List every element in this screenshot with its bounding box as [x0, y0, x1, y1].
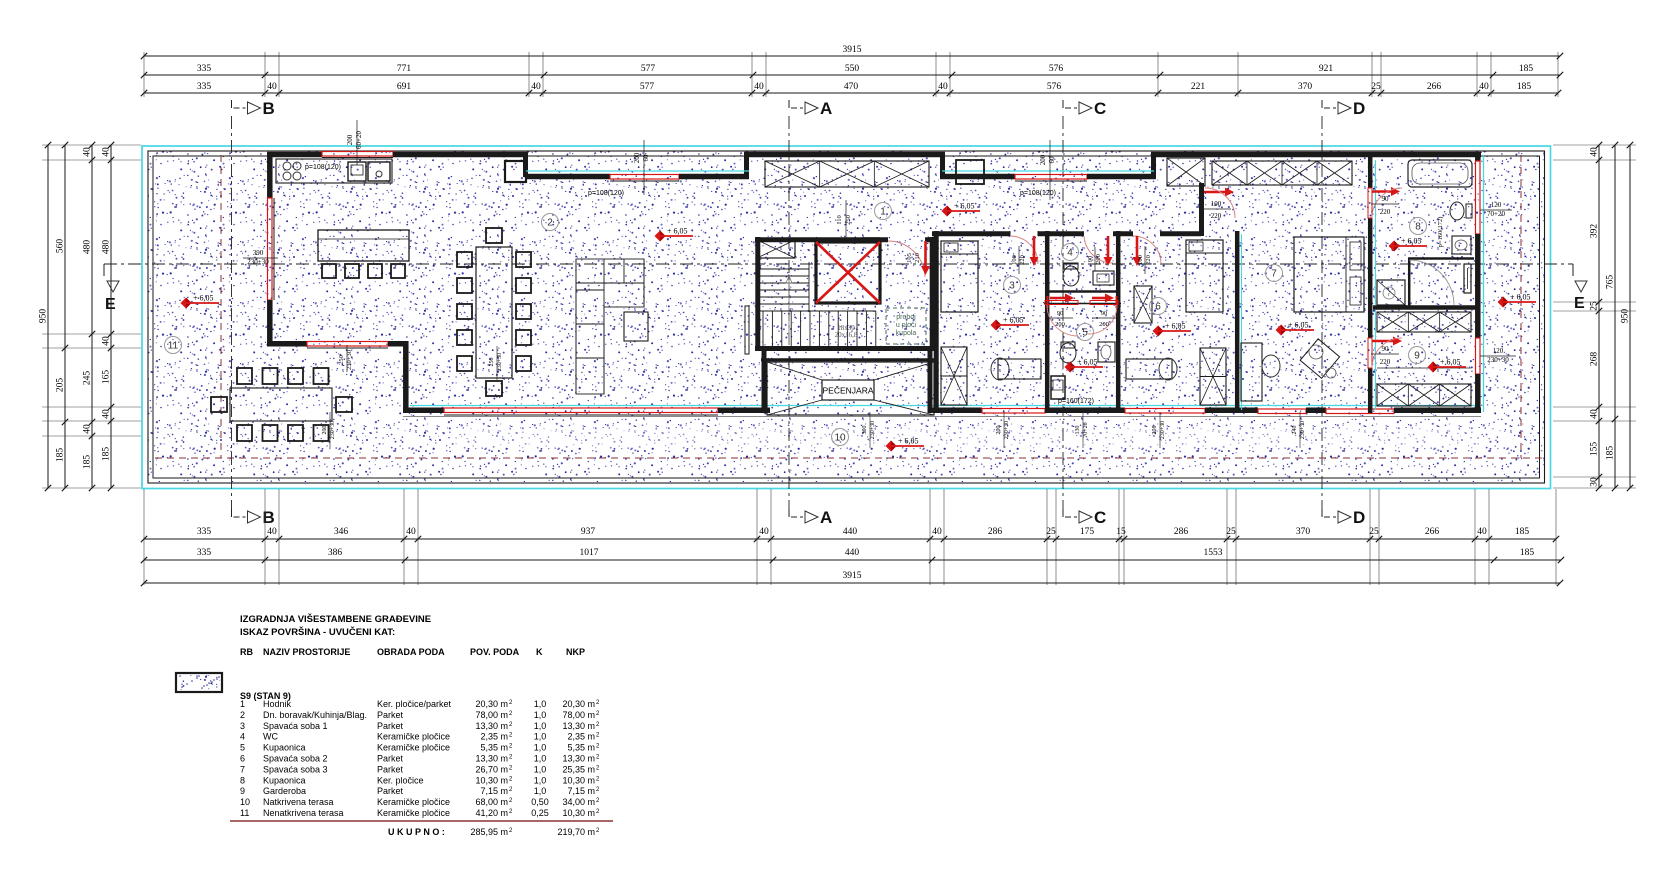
- svg-text:470: 470: [844, 82, 859, 92]
- svg-text:Keramičke pločice: Keramičke pločice: [377, 808, 450, 818]
- svg-text:+ 6,05: + 6,05: [1510, 293, 1531, 302]
- svg-text:205: 205: [56, 378, 66, 393]
- svg-text:691: 691: [397, 82, 412, 92]
- svg-text:Keramičke pločice: Keramičke pločice: [377, 732, 450, 742]
- svg-text:335: 335: [197, 527, 212, 537]
- svg-text:200: 200: [1039, 154, 1047, 165]
- svg-text:p=108(120): p=108(120): [1020, 190, 1056, 197]
- svg-text:576: 576: [1047, 82, 1062, 92]
- svg-text:219,70 m: 219,70 m: [557, 827, 595, 837]
- svg-text:100: 100: [1137, 255, 1144, 265]
- svg-text:200: 200: [1095, 254, 1102, 264]
- svg-text:13,30 m: 13,30 m: [475, 754, 508, 764]
- svg-text:230+30: 230+30: [346, 350, 353, 370]
- svg-text:200: 200: [633, 152, 641, 163]
- svg-text:100: 100: [1011, 255, 1018, 265]
- svg-text:60: 60: [1048, 156, 1056, 164]
- svg-text:70+20: 70+20: [1487, 210, 1505, 218]
- svg-text:120: 120: [1493, 347, 1504, 355]
- svg-text:NAZIV PROSTORIJE: NAZIV PROSTORIJE: [263, 647, 350, 657]
- svg-text:Ker. pločice/parket: Ker. pločice/parket: [377, 699, 452, 709]
- svg-text:Keramičke pločice: Keramičke pločice: [377, 743, 450, 753]
- svg-text:5,35 m: 5,35 m: [567, 743, 595, 753]
- svg-text:392: 392: [1590, 224, 1600, 239]
- svg-text:390: 390: [253, 249, 264, 257]
- svg-text:2: 2: [596, 700, 600, 706]
- svg-text:Spavaća soba 1: Spavaća soba 1: [263, 721, 328, 731]
- svg-text:440: 440: [843, 527, 858, 537]
- svg-text:40: 40: [1479, 82, 1489, 92]
- svg-text:40: 40: [531, 82, 541, 92]
- svg-text:4: 4: [1067, 248, 1073, 259]
- svg-text:370: 370: [1296, 527, 1311, 537]
- svg-text:105: 105: [906, 253, 913, 263]
- svg-text:13,30 m: 13,30 m: [562, 754, 595, 764]
- svg-text:+ 6,05: + 6,05: [1077, 358, 1098, 367]
- svg-text:40: 40: [1590, 147, 1600, 157]
- svg-text:2: 2: [509, 711, 513, 717]
- svg-text:440: 440: [845, 548, 860, 558]
- svg-text:200: 200: [996, 426, 1002, 435]
- svg-text:1,0: 1,0: [534, 786, 547, 796]
- svg-text:A: A: [820, 508, 832, 527]
- svg-text:Natkrivena terasa: Natkrivena terasa: [263, 797, 334, 807]
- svg-text:60: 60: [642, 154, 650, 162]
- svg-text:90: 90: [1101, 310, 1108, 317]
- svg-text:2: 2: [509, 744, 513, 750]
- svg-text:2: 2: [509, 776, 513, 782]
- svg-text:40: 40: [102, 409, 112, 419]
- svg-text:240: 240: [1292, 426, 1298, 435]
- svg-text:D: D: [1353, 99, 1365, 118]
- svg-text:Parket: Parket: [377, 786, 404, 796]
- svg-text:921: 921: [1319, 64, 1334, 74]
- svg-text:RB: RB: [240, 647, 253, 657]
- svg-text:15: 15: [1116, 527, 1126, 537]
- svg-text:8: 8: [240, 775, 245, 785]
- svg-text:185: 185: [1520, 548, 1535, 558]
- svg-text:250: 250: [489, 358, 495, 367]
- svg-text:7: 7: [1271, 269, 1277, 280]
- svg-text:25,35 m: 25,35 m: [562, 764, 595, 774]
- svg-text:Nenatkrivena terasa: Nenatkrivena terasa: [263, 808, 344, 818]
- svg-text:2: 2: [596, 776, 600, 782]
- svg-text:220: 220: [1380, 358, 1391, 366]
- svg-text:480: 480: [102, 240, 112, 255]
- svg-text:Ker. pločice: Ker. pločice: [377, 775, 424, 785]
- svg-text:266: 266: [1427, 82, 1442, 92]
- svg-text:Parket: Parket: [377, 764, 404, 774]
- svg-text:WC: WC: [263, 732, 278, 742]
- svg-text:185: 185: [1515, 527, 1530, 537]
- svg-text:2: 2: [596, 787, 600, 793]
- svg-text:250: 250: [338, 355, 345, 365]
- svg-text:771: 771: [397, 64, 412, 74]
- svg-text:560: 560: [56, 239, 66, 254]
- svg-text:3915: 3915: [843, 45, 862, 55]
- svg-text:+ 6,05: + 6,05: [954, 202, 975, 211]
- svg-text:120: 120: [1491, 201, 1502, 209]
- svg-text:E: E: [1574, 295, 1585, 312]
- svg-text:5: 5: [240, 743, 245, 753]
- svg-text:10,30 m: 10,30 m: [475, 775, 508, 785]
- svg-text:230+30: 230+30: [1004, 421, 1010, 439]
- svg-text:576: 576: [1049, 64, 1064, 74]
- svg-text:C: C: [1094, 99, 1106, 118]
- svg-text:Garderoba: Garderoba: [263, 786, 306, 796]
- svg-text:2: 2: [596, 798, 600, 804]
- svg-text:11: 11: [240, 808, 249, 818]
- svg-text:220: 220: [1380, 208, 1391, 216]
- svg-text:130: 130: [1075, 426, 1081, 435]
- svg-text:950: 950: [39, 309, 49, 324]
- svg-text:3: 3: [1009, 281, 1015, 292]
- svg-text:D: D: [1353, 508, 1365, 527]
- svg-text:70+20: 70+20: [1083, 422, 1089, 437]
- svg-text:175: 175: [1080, 527, 1095, 537]
- svg-text:10,30 m: 10,30 m: [562, 808, 595, 818]
- svg-text:NKP: NKP: [566, 647, 585, 657]
- svg-text:40: 40: [267, 82, 277, 92]
- svg-text:Hodnik: Hodnik: [263, 699, 292, 709]
- svg-text:2: 2: [509, 733, 513, 739]
- svg-text:230+30: 230+30: [1487, 356, 1509, 364]
- svg-text:185: 185: [1517, 82, 1532, 92]
- svg-text:2: 2: [509, 755, 513, 761]
- svg-text:25: 25: [1226, 527, 1236, 537]
- svg-text:25: 25: [1590, 301, 1600, 311]
- svg-text:1: 1: [880, 207, 886, 218]
- svg-text:OBRADA PODA: OBRADA PODA: [377, 647, 445, 657]
- svg-text:40: 40: [1590, 409, 1600, 419]
- svg-text:210: 210: [914, 253, 921, 263]
- svg-text:480: 480: [83, 240, 93, 255]
- svg-text:B: B: [263, 99, 275, 118]
- svg-text:1: 1: [240, 699, 245, 709]
- svg-text:3: 3: [240, 721, 245, 731]
- svg-text:1,0: 1,0: [534, 754, 547, 764]
- svg-text:230+30: 230+30: [870, 421, 876, 439]
- svg-text:40: 40: [932, 527, 942, 537]
- svg-text:0,25: 0,25: [531, 808, 549, 818]
- svg-text:u ploči: u ploči: [896, 322, 917, 329]
- svg-text:K: K: [536, 647, 543, 657]
- svg-text:10: 10: [834, 433, 846, 444]
- svg-text:386: 386: [328, 548, 343, 558]
- svg-text:40: 40: [754, 82, 764, 92]
- svg-text:POV. PODA: POV. PODA: [470, 647, 520, 657]
- svg-text:230+30: 230+30: [1300, 421, 1306, 439]
- svg-text:110: 110: [836, 215, 843, 225]
- svg-text:200: 200: [1099, 321, 1109, 328]
- svg-text:34,00 m: 34,00 m: [562, 797, 595, 807]
- svg-text:765: 765: [1606, 275, 1616, 290]
- svg-text:30: 30: [1590, 477, 1600, 487]
- svg-text:266: 266: [1425, 527, 1440, 537]
- svg-text:1,0: 1,0: [534, 764, 547, 774]
- svg-text:78,00 m: 78,00 m: [475, 710, 508, 720]
- svg-text:285,95 m: 285,95 m: [470, 827, 508, 837]
- svg-text:2: 2: [596, 744, 600, 750]
- svg-text:370: 370: [1298, 82, 1313, 92]
- svg-text:p=108(120): p=108(120): [588, 190, 624, 197]
- svg-text:335: 335: [197, 64, 212, 74]
- svg-text:+ 6,05: + 6,05: [898, 437, 919, 446]
- svg-text:250: 250: [845, 215, 852, 225]
- svg-text:Dn. boravak/Kuhinja/Blag.: Dn. boravak/Kuhinja/Blag.: [263, 710, 367, 720]
- svg-text:5,35 m: 5,35 m: [480, 743, 508, 753]
- svg-text:10,30 m: 10,30 m: [562, 775, 595, 785]
- svg-text:7: 7: [240, 764, 245, 774]
- svg-text:40: 40: [102, 147, 112, 157]
- svg-text:220: 220: [1211, 212, 1222, 220]
- svg-text:+ 6,05: + 6,05: [667, 227, 688, 236]
- svg-text:+ 6,05: + 6,05: [1165, 322, 1186, 331]
- svg-text:Spavaća soba 2: Spavaća soba 2: [263, 754, 328, 764]
- svg-text:2: 2: [509, 700, 513, 706]
- svg-text:9: 9: [240, 786, 245, 796]
- svg-text:+ 6,05: + 6,05: [193, 294, 214, 303]
- svg-text:1,0: 1,0: [534, 743, 547, 753]
- svg-text:185: 185: [1606, 446, 1616, 461]
- svg-text:40: 40: [102, 336, 112, 346]
- svg-text:13,30 m: 13,30 m: [475, 721, 508, 731]
- svg-text:6: 6: [1155, 302, 1161, 313]
- svg-text:937: 937: [581, 527, 596, 537]
- svg-text:13,30 m: 13,30 m: [562, 721, 595, 731]
- svg-text:2,35 m: 2,35 m: [567, 732, 595, 742]
- svg-text:185: 185: [102, 447, 112, 462]
- svg-text:245: 245: [83, 371, 93, 386]
- svg-text:68,00 m: 68,00 m: [475, 797, 508, 807]
- svg-text:2: 2: [509, 798, 513, 804]
- svg-text:B: B: [263, 508, 275, 527]
- svg-text:7,15 m: 7,15 m: [567, 786, 595, 796]
- svg-text:90: 90: [1057, 310, 1064, 317]
- svg-text:1,0: 1,0: [534, 699, 547, 709]
- svg-text:3915: 3915: [843, 571, 862, 581]
- svg-text:1017: 1017: [580, 548, 599, 558]
- svg-text:220: 220: [1019, 255, 1026, 265]
- svg-text:20,30 m: 20,30 m: [475, 699, 508, 709]
- svg-text:+ 6,05: + 6,05: [1440, 358, 1461, 367]
- svg-text:1,0: 1,0: [534, 775, 547, 785]
- svg-text:PEČENJARA: PEČENJARA: [822, 386, 873, 396]
- svg-text:2: 2: [596, 722, 600, 728]
- svg-text:40: 40: [759, 527, 769, 537]
- svg-text:90: 90: [1382, 345, 1390, 353]
- svg-text:100: 100: [1211, 200, 1222, 208]
- svg-text:40: 40: [938, 82, 948, 92]
- svg-text:40: 40: [1477, 527, 1487, 537]
- svg-text:40: 40: [267, 527, 277, 537]
- svg-text:kupola: kupola: [896, 330, 917, 337]
- svg-text:7,15 m: 7,15 m: [480, 786, 508, 796]
- svg-text:4: 4: [240, 732, 245, 742]
- svg-text:9: 9: [1414, 351, 1420, 362]
- svg-text:200: 200: [322, 426, 328, 435]
- svg-text:286: 286: [1174, 527, 1189, 537]
- svg-text:2: 2: [509, 765, 513, 771]
- svg-text:155: 155: [1590, 442, 1600, 457]
- svg-text:25: 25: [1371, 82, 1381, 92]
- svg-text:577: 577: [640, 82, 655, 92]
- svg-text:60+20: 60+20: [355, 131, 363, 149]
- svg-text:2: 2: [509, 828, 513, 834]
- svg-text:335: 335: [197, 82, 212, 92]
- svg-text:950: 950: [1621, 309, 1631, 324]
- svg-text:41,20 m: 41,20 m: [475, 808, 508, 818]
- svg-text:5: 5: [1082, 328, 1088, 339]
- svg-text:Kupaonica: Kupaonica: [263, 743, 306, 753]
- svg-text:185: 185: [83, 455, 93, 470]
- svg-text:2: 2: [596, 765, 600, 771]
- svg-text:10: 10: [240, 797, 250, 807]
- svg-text:26,70 m: 26,70 m: [475, 764, 508, 774]
- svg-text:Spavaća soba 3: Spavaća soba 3: [263, 764, 328, 774]
- svg-text:346: 346: [334, 527, 349, 537]
- svg-text:286: 286: [988, 527, 1003, 537]
- svg-text:A: A: [820, 99, 832, 118]
- svg-text:20,30 m: 20,30 m: [562, 699, 595, 709]
- svg-text:2: 2: [509, 787, 513, 793]
- svg-text:8: 8: [1415, 222, 1421, 233]
- svg-text:230+30: 230+30: [330, 421, 336, 439]
- svg-text:Parket: Parket: [377, 710, 404, 720]
- svg-text:U K U P N O :: U K U P N O :: [388, 827, 445, 837]
- svg-text:90: 90: [1382, 195, 1390, 203]
- svg-text:2: 2: [596, 809, 600, 815]
- svg-text:IZGRADNJA VIŠESTAMBENE GRAĐEVI: IZGRADNJA VIŠESTAMBENE GRAĐEVINE: [240, 613, 431, 625]
- svg-text:6: 6: [240, 754, 245, 764]
- svg-text:550: 550: [845, 64, 860, 74]
- svg-text:25: 25: [1046, 527, 1056, 537]
- svg-text:p=108(120): p=108(120): [305, 164, 341, 171]
- svg-text:+ 6,05: + 6,05: [1401, 237, 1422, 246]
- svg-text:2: 2: [547, 218, 553, 229]
- svg-text:0,50: 0,50: [531, 797, 549, 807]
- svg-text:1553: 1553: [1204, 548, 1223, 558]
- svg-text:165: 165: [102, 370, 112, 385]
- svg-text:78,00 m: 78,00 m: [562, 710, 595, 720]
- svg-text:Kupaonica: Kupaonica: [263, 775, 306, 785]
- svg-text:p=160(172): p=160(172): [1437, 217, 1444, 248]
- svg-text:200: 200: [1055, 321, 1065, 328]
- svg-text:1,0: 1,0: [534, 732, 547, 742]
- svg-text:2: 2: [596, 828, 600, 834]
- svg-text:40: 40: [83, 147, 93, 157]
- svg-text:C: C: [1094, 508, 1106, 527]
- svg-text:Parket: Parket: [377, 721, 404, 731]
- svg-text:1,0: 1,0: [534, 721, 547, 731]
- svg-text:230+30: 230+30: [1160, 421, 1166, 439]
- svg-text:2: 2: [509, 722, 513, 728]
- svg-text:+ 6,05: + 6,05: [1288, 321, 1309, 330]
- svg-text:ISKAZ POVRŠINA - UVUČENI KAT:: ISKAZ POVRŠINA - UVUČENI KAT:: [240, 626, 395, 638]
- svg-text:335: 335: [197, 548, 212, 558]
- svg-text:2: 2: [240, 710, 245, 720]
- svg-text:r: r: [1388, 292, 1390, 298]
- svg-text:p=160(172): p=160(172): [1058, 398, 1094, 405]
- svg-text:Keramičke pločice: Keramičke pločice: [377, 797, 450, 807]
- svg-text:208: 208: [1152, 426, 1158, 435]
- svg-text:185: 185: [56, 448, 66, 463]
- svg-text:221: 221: [1191, 82, 1206, 92]
- svg-text:2: 2: [596, 755, 600, 761]
- svg-text:2: 2: [596, 711, 600, 717]
- svg-text:25: 25: [1369, 527, 1379, 537]
- svg-text:1,0: 1,0: [534, 710, 547, 720]
- svg-text:40: 40: [83, 424, 93, 434]
- svg-text:2: 2: [509, 809, 513, 815]
- svg-text:230+30: 230+30: [497, 353, 503, 371]
- svg-text:577: 577: [641, 64, 656, 74]
- svg-text:2,35 m: 2,35 m: [480, 732, 508, 742]
- svg-text:300: 300: [862, 426, 868, 435]
- svg-text:230+30: 230+30: [247, 258, 269, 266]
- svg-text:268: 268: [1590, 352, 1600, 367]
- svg-text:Parket: Parket: [377, 754, 404, 764]
- svg-text:2: 2: [596, 733, 600, 739]
- svg-text:proboj: proboj: [896, 314, 916, 321]
- svg-text:20x16,8: 20x16,8: [835, 331, 858, 339]
- svg-text:11: 11: [168, 341, 179, 352]
- svg-text:40: 40: [406, 527, 416, 537]
- svg-text:220: 220: [1145, 255, 1152, 265]
- svg-text:+ 6,05: + 6,05: [1003, 316, 1024, 325]
- svg-text:200: 200: [346, 134, 354, 145]
- svg-text:185: 185: [1519, 64, 1534, 74]
- svg-text:90: 90: [1087, 256, 1094, 263]
